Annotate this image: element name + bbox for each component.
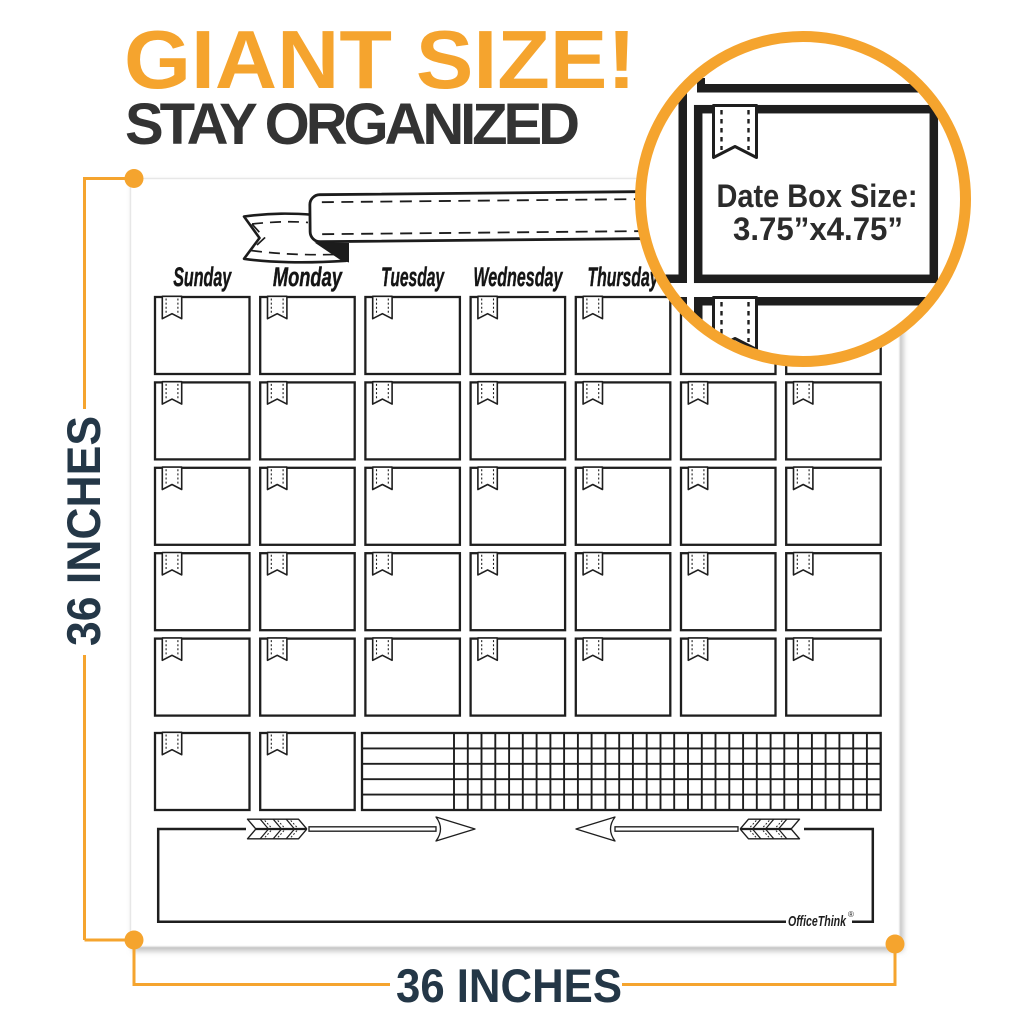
svg-text:36 INCHES: 36 INCHES: [57, 416, 110, 646]
svg-text:3.75”x4.75”: 3.75”x4.75”: [733, 211, 903, 247]
svg-text:Tuesday: Tuesday: [381, 262, 445, 292]
svg-text:STAY ORGANIZED: STAY ORGANIZED: [125, 92, 580, 157]
svg-text:Thursday: Thursday: [588, 262, 660, 292]
svg-text:Date Box Size:: Date Box Size:: [717, 178, 918, 214]
svg-text:Monday: Monday: [273, 262, 343, 292]
svg-text:Wednesday: Wednesday: [473, 262, 563, 292]
svg-text:36 INCHES: 36 INCHES: [396, 959, 622, 1012]
svg-text:®: ®: [848, 910, 854, 919]
svg-text:Sunday: Sunday: [173, 262, 232, 292]
svg-text:OfficeThink: OfficeThink: [788, 914, 847, 930]
